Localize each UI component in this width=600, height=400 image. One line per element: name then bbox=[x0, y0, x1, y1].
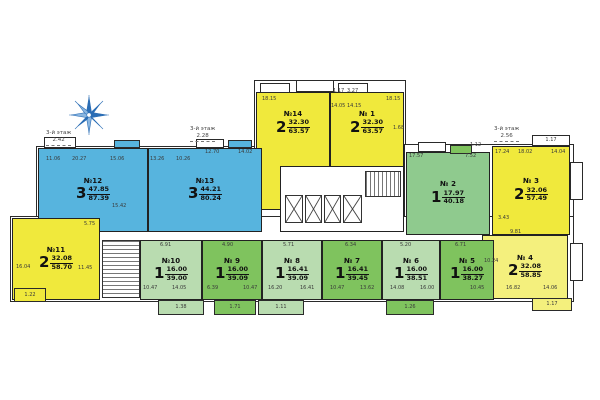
room-count: 1 bbox=[450, 267, 460, 281]
total-area: 57.49 bbox=[525, 195, 548, 202]
room-area-label: 9.81 bbox=[510, 230, 521, 235]
room-count: 1 bbox=[275, 267, 285, 281]
room-count: 1 bbox=[394, 267, 404, 281]
room-area-label: 5.71 bbox=[283, 243, 294, 248]
apartment-card: № 9 1 16.0039.09 bbox=[215, 258, 249, 282]
balcony: 1.22 bbox=[14, 288, 46, 302]
room-count: 2 bbox=[276, 121, 286, 135]
room-area-label: 6.39 bbox=[207, 286, 218, 291]
apartment-8[interactable]: № 8 1 16.4139.09 bbox=[262, 240, 322, 300]
balcony bbox=[260, 83, 290, 93]
balcony-area-label: 1.22 bbox=[24, 293, 35, 298]
room-area-label: 16.04 bbox=[16, 265, 30, 270]
room-area-label: 10.47 bbox=[330, 286, 344, 291]
balcony: 1.17 bbox=[532, 298, 572, 311]
room-area-label: 13.62 bbox=[360, 286, 374, 291]
apartment-9[interactable]: № 9 1 16.0039.09 bbox=[202, 240, 262, 300]
apartment-7[interactable]: № 7 1 16.4139.45 bbox=[322, 240, 382, 300]
compass-icon bbox=[68, 94, 110, 136]
room-area-label: 10.47 bbox=[243, 286, 257, 291]
balcony: 1.11 bbox=[258, 300, 304, 315]
elevator-shaft-icon bbox=[305, 195, 322, 223]
apartment-card: №11 2 32.0858.70 bbox=[39, 247, 73, 271]
apartment-card: № 6 1 16.0038.51 bbox=[394, 258, 428, 282]
total-area: 63.57 bbox=[361, 128, 384, 135]
room-area-label: 7.52 bbox=[465, 154, 476, 159]
apartment-card: № 4 2 32.0858.85 bbox=[508, 255, 542, 279]
balcony: 1.71 bbox=[214, 300, 256, 315]
room-count: 2 bbox=[39, 256, 49, 270]
apartment-card: № 2 1 17.9740.18 bbox=[431, 181, 465, 205]
total-area: 63.57 bbox=[287, 128, 310, 135]
balcony bbox=[418, 142, 446, 152]
room-count: 1 bbox=[154, 267, 164, 281]
room-area-label: 14.05 bbox=[331, 104, 345, 109]
room-area-label: 20.27 bbox=[72, 157, 86, 162]
apartment-card: № 8 1 16.4139.09 bbox=[275, 258, 309, 282]
total-area: 58.85 bbox=[519, 272, 542, 279]
room-area-label: 14.06 bbox=[543, 286, 557, 291]
floor-plan: №14 2 32.3063.57 № 1 2 32.3063.57 №12 3 … bbox=[0, 0, 600, 400]
balcony-area-label: 1.17 bbox=[546, 302, 557, 307]
balcony-area-label: 1.11 bbox=[275, 305, 286, 310]
room-area-label: 16.00 bbox=[420, 286, 434, 291]
balcony: 1.26 bbox=[386, 300, 434, 315]
room-count: 3 bbox=[188, 187, 198, 201]
room-area-label: 10.26 bbox=[176, 157, 190, 162]
room-area-label: 10.47 bbox=[143, 286, 157, 291]
floor-annotation: 3-й этаж2.56 bbox=[494, 126, 519, 142]
room-area-label: 18.15 bbox=[386, 97, 400, 102]
room-area-label: 4.90 bbox=[222, 243, 233, 248]
apartment-card: № 7 1 16.4139.45 bbox=[335, 258, 369, 282]
total-area: 39.09 bbox=[286, 275, 309, 282]
floor-annotation: 3-й этаж2.42 bbox=[46, 130, 71, 146]
elevator-shaft-icon bbox=[343, 195, 362, 223]
apartment-10[interactable]: №10 1 16.0039.00 bbox=[140, 240, 202, 300]
elevator-shaft-icon bbox=[285, 195, 303, 223]
room-area-label: 14.15 bbox=[347, 104, 361, 109]
floor-annotation: 3-й этаж2.28 bbox=[190, 126, 215, 142]
balcony bbox=[570, 162, 583, 200]
room-area-label: 12.70 bbox=[205, 150, 219, 155]
room-count: 3 bbox=[76, 187, 86, 201]
balcony bbox=[570, 243, 583, 281]
apartment-card: № 1 2 32.3063.57 bbox=[350, 111, 384, 135]
room-area-label: 6.34 bbox=[345, 243, 356, 248]
room-count: 1 bbox=[431, 191, 441, 205]
apartment-card: №10 1 16.0039.00 bbox=[154, 258, 188, 282]
balcony bbox=[296, 80, 334, 92]
room-count: 2 bbox=[350, 121, 360, 135]
room-area-label: 16.82 bbox=[506, 286, 520, 291]
total-area: 40.18 bbox=[442, 198, 465, 205]
total-area: 80.24 bbox=[199, 195, 222, 202]
apartment-2[interactable]: № 2 1 17.9740.18 bbox=[406, 152, 490, 235]
room-area-label: 18.15 bbox=[262, 97, 276, 102]
balcony-area-label: 1.17 bbox=[545, 138, 556, 143]
room-area-label: 14.02 bbox=[238, 150, 252, 155]
room-area-label: 16.20 bbox=[268, 286, 282, 291]
room-area-label: 13.26 bbox=[150, 157, 164, 162]
apartment-card: № 5 1 16.0038.27 bbox=[450, 258, 484, 282]
room-area-label: 14.05 bbox=[172, 286, 186, 291]
apartment-6[interactable]: № 6 1 16.0038.51 bbox=[382, 240, 440, 300]
room-area-label: 1.12 bbox=[470, 143, 481, 148]
room-area-label: 14.04 bbox=[551, 150, 565, 155]
room-area-label: 11.45 bbox=[78, 266, 92, 271]
stairs-center bbox=[365, 171, 401, 197]
room-area-label: 6.91 bbox=[160, 243, 171, 248]
room-area-label: 10.45 bbox=[470, 286, 484, 291]
balcony bbox=[114, 140, 140, 148]
room-area-label: 16.41 bbox=[300, 286, 314, 291]
stairs-left bbox=[102, 240, 140, 298]
room-area-label: 1.17 bbox=[333, 89, 344, 94]
room-area-label: 17.57 bbox=[409, 154, 423, 159]
apartment-card: №14 2 32.3063.57 bbox=[276, 111, 310, 135]
elevator-shaft-icon bbox=[324, 195, 341, 223]
room-area-label: 5.20 bbox=[400, 243, 411, 248]
room-count: 1 bbox=[335, 267, 345, 281]
balcony-area-label: 1.71 bbox=[229, 305, 240, 310]
balcony: 1.17 bbox=[532, 135, 570, 146]
room-area-label: 14.08 bbox=[390, 286, 404, 291]
room-area-label: 10.24 bbox=[484, 259, 498, 264]
room-area-label: 15.06 bbox=[110, 157, 124, 162]
room-area-label: 6.71 bbox=[455, 243, 466, 248]
room-area-label: 5.75 bbox=[84, 222, 95, 227]
elevator-core bbox=[280, 166, 404, 232]
total-area: 38.51 bbox=[405, 275, 428, 282]
room-area-label: 3.43 bbox=[498, 216, 509, 221]
room-area-label: 15.42 bbox=[112, 204, 126, 209]
balcony-area-label: 1.26 bbox=[404, 305, 415, 310]
balcony bbox=[228, 140, 252, 148]
apartment-card: №12 3 47.8587.39 bbox=[76, 178, 110, 202]
apartment-13[interactable]: №13 3 44.2180.24 bbox=[148, 148, 262, 232]
room-count: 2 bbox=[514, 188, 524, 202]
balcony-area-label: 1.38 bbox=[175, 305, 186, 310]
total-area: 38.27 bbox=[461, 275, 484, 282]
apartment-3[interactable]: № 3 2 32.0657.49 bbox=[492, 146, 570, 235]
room-area-label: 1.68 bbox=[393, 126, 404, 131]
total-area: 58.70 bbox=[50, 264, 73, 271]
room-count: 2 bbox=[508, 264, 518, 278]
balcony: 1.38 bbox=[158, 300, 204, 315]
apartment-5[interactable]: № 5 1 16.0038.27 bbox=[440, 240, 494, 300]
room-area-label: 3.27 bbox=[347, 89, 358, 94]
room-area-label: 11.06 bbox=[46, 157, 60, 162]
total-area: 39.45 bbox=[346, 275, 369, 282]
total-area: 39.00 bbox=[165, 275, 188, 282]
apartment-card: № 3 2 32.0657.49 bbox=[514, 178, 548, 202]
room-area-label: 18.02 bbox=[518, 150, 532, 155]
total-area: 39.09 bbox=[226, 275, 249, 282]
room-count: 1 bbox=[215, 267, 225, 281]
apartment-card: №13 3 44.2180.24 bbox=[188, 178, 222, 202]
room-area-label: 17.24 bbox=[495, 150, 509, 155]
total-area: 87.39 bbox=[87, 195, 110, 202]
